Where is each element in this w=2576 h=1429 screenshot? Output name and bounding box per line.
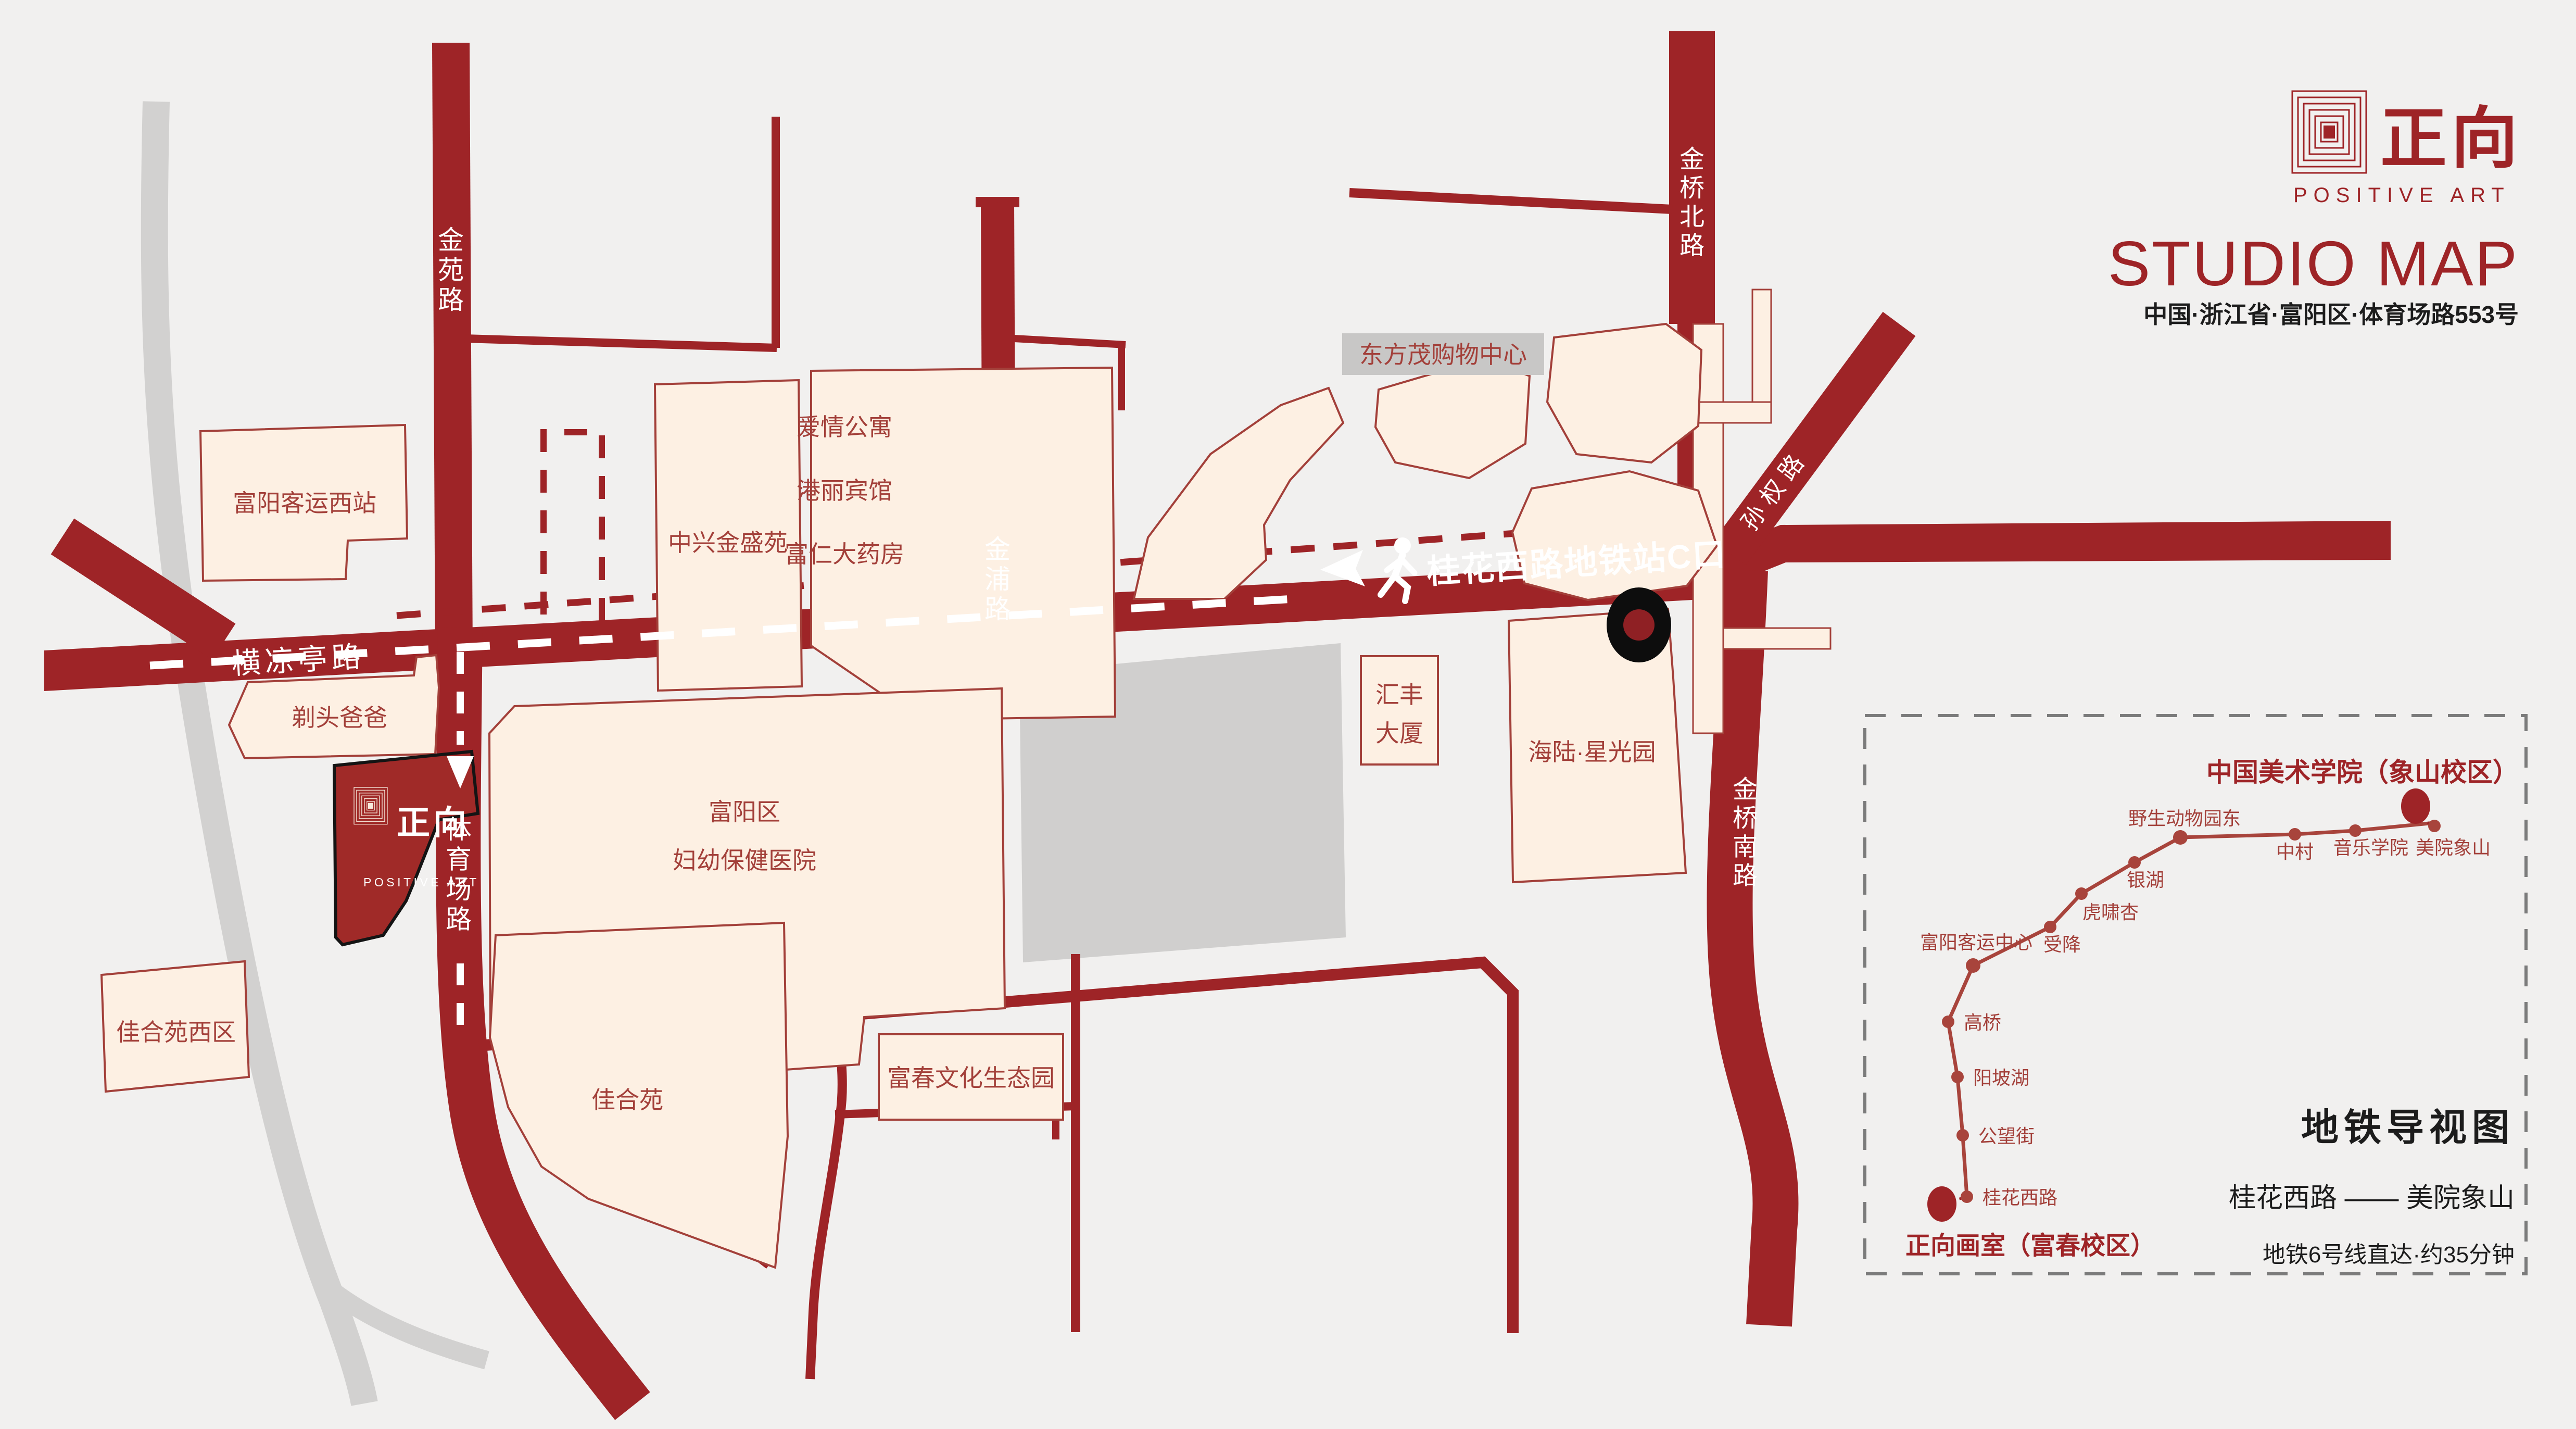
building-huifeng: [1361, 656, 1438, 764]
label-jiaheyuan-west: 佳合苑西区: [116, 1019, 236, 1046]
label-jinyuan: 金苑路: [438, 225, 464, 315]
page-title: STUDIO MAP: [2108, 228, 2519, 299]
terminal-dot: [2401, 788, 2430, 824]
station-yinhu: 银湖: [2127, 869, 2164, 891]
label-hailu: 海陆·星光园: [1528, 738, 1656, 766]
label-huifeng-2: 大厦: [1375, 720, 1423, 747]
label-jinpu: 金浦路: [984, 535, 1011, 624]
brand-logo-en: POSITIVE ART: [2293, 184, 2510, 207]
brand-logo-icon: [2292, 91, 2366, 173]
inset-terminal-label: 中国美术学院（象山校区）: [2206, 758, 2519, 787]
station-zhongcun: 中村: [2276, 841, 2314, 862]
label-aiqing: 爱情公寓: [797, 413, 892, 441]
inset-origin-label: 正向画室（富春校区）: [1905, 1232, 2155, 1260]
station-stub: [1723, 628, 1830, 649]
inset-title: 地铁导视图: [2301, 1107, 2515, 1149]
label-hospital-2: 妇幼保健医院: [673, 847, 816, 874]
origin-dot: [1927, 1186, 1956, 1222]
brand-logo-cn: 正向: [2380, 102, 2522, 176]
label-huifeng-1: 汇丰: [1375, 681, 1423, 708]
label-furen: 富仁大药房: [785, 541, 904, 568]
station-shouxiang: 受降: [2043, 934, 2081, 955]
road-jinyuan: [432, 43, 473, 659]
label-tiyuchang: 体育场路: [446, 815, 472, 934]
station-yinyuexueyuan: 音乐学院: [2333, 837, 2408, 858]
station-yangpohu: 阳坡湖: [1973, 1067, 2029, 1088]
label-fuyang-west-station: 富阳客运西站: [233, 490, 376, 517]
label-titou: 剃头爸爸: [292, 704, 387, 731]
station-gongwangjie: 公望街: [1978, 1125, 2035, 1147]
station-gaoqiao: 高桥: [1964, 1012, 2001, 1033]
label-jiaheyuan: 佳合苑: [591, 1086, 663, 1113]
inset-info: 地铁6号线直达·约35分钟: [2263, 1242, 2515, 1268]
studio-logo-icon: [354, 787, 387, 824]
inset-route: 桂花西路 —— 美院象山: [2229, 1183, 2515, 1213]
label-zhongxing: 中兴金盛苑: [668, 529, 788, 556]
station-huxiaoxing: 虎啸杏: [2082, 901, 2139, 923]
station-meiyuanxiangshan: 美院象山: [2416, 837, 2491, 858]
label-hospital-1: 富阳区: [709, 798, 780, 825]
station-yeshengdongwuyuan: 野生动物园东: [2128, 808, 2241, 829]
address-line: 中国·浙江省·富阳区·体育场路553号: [2143, 301, 2519, 328]
metro-station-marker: [1607, 587, 1671, 662]
studio-map-canvas: 正向 POSITIVE ART 富阳客运西站 中兴金盛苑 爱情公寓 港丽宾馆 富…: [0, 0, 2576, 1429]
label-gangli: 港丽宾馆: [797, 477, 892, 504]
station-fuyangkeyun: 富阳客运中心: [1920, 932, 2032, 953]
label-fuchun-park: 富春文化生态园: [887, 1064, 1055, 1092]
label-dongfangmao: 东方茂购物中心: [1359, 341, 1527, 368]
station-guihuaxilu: 桂花西路: [1982, 1187, 2057, 1208]
building-dongfangmao-3: [1547, 324, 1701, 462]
